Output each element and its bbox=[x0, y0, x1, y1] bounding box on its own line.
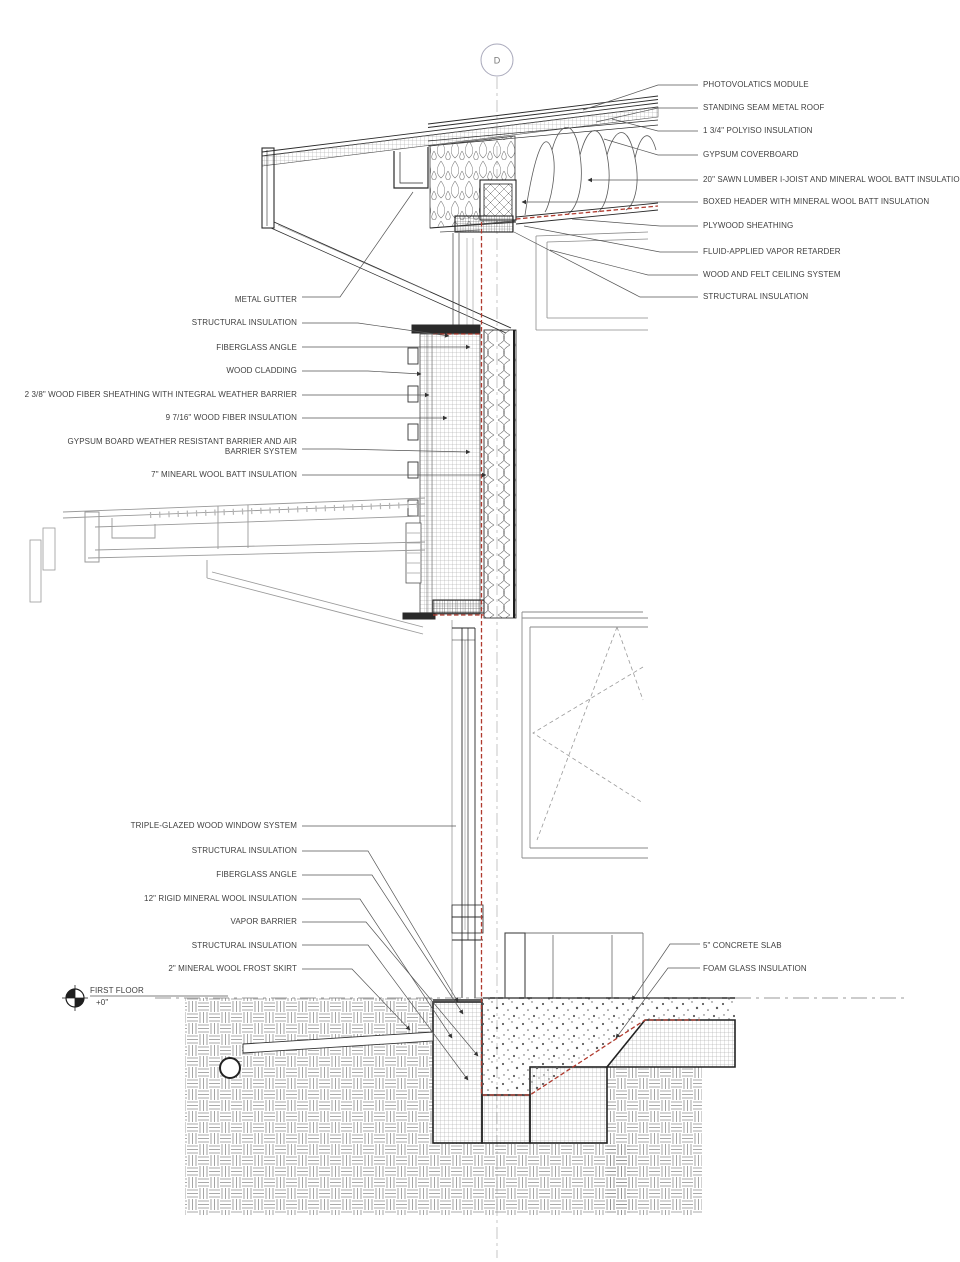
callout-photovoltaics-module: PHOTOVOLATICS MODULE bbox=[703, 80, 809, 90]
drain-pipe bbox=[220, 1058, 240, 1078]
callout-metal-gutter: METAL GUTTER bbox=[235, 295, 297, 305]
callout-plywood-sheathing: PLYWOOD SHEATHING bbox=[703, 221, 793, 231]
callout-structural-insulation-roof: STRUCTURAL INSULATION bbox=[703, 292, 808, 302]
callout-wood-cladding: WOOD CLADDING bbox=[226, 366, 297, 376]
wall-panel bbox=[403, 325, 516, 619]
level-marker-elevation: +0" bbox=[96, 998, 108, 1008]
callout-vapor-barrier: VAPOR BARRIER bbox=[231, 917, 298, 927]
level-marker-label: FIRST FLOOR bbox=[90, 986, 144, 996]
canopy bbox=[30, 498, 425, 634]
callout-fluid-applied-vapor-retarder: FLUID-APPLIED VAPOR RETARDER bbox=[703, 247, 841, 257]
callout-boxed-header: BOXED HEADER WITH MINERAL WOOL BATT INSU… bbox=[703, 197, 929, 207]
window-elevation bbox=[505, 612, 648, 998]
roof-assembly bbox=[262, 96, 658, 333]
callout-mineral-wool-frost-skirt: 2" MINERAL WOOL FROST SKIRT bbox=[168, 964, 297, 974]
grid-bubble-label: D bbox=[494, 56, 501, 66]
callout-triple-glazed-window: TRIPLE-GLAZED WOOD WINDOW SYSTEM bbox=[131, 821, 297, 831]
section-detail-sheet: D bbox=[0, 0, 960, 1262]
section-detail-drawing: D bbox=[0, 0, 960, 1262]
callout-rigid-mineral-wool: 12" RIGID MINERAL WOOL INSULATION bbox=[144, 894, 297, 904]
callout-foam-glass-insulation: FOAM GLASS INSULATION bbox=[703, 964, 807, 974]
level-marker-icon bbox=[62, 985, 88, 1011]
callout-structural-insulation-sill: STRUCTURAL INSULATION bbox=[192, 846, 297, 856]
callout-structural-insulation-base: STRUCTURAL INSULATION bbox=[192, 941, 297, 951]
callout-wood-fiber-insulation: 9 7/16" WOOD FIBER INSULATION bbox=[166, 413, 297, 423]
callout-structural-insulation-wall-top: STRUCTURAL INSULATION bbox=[192, 318, 297, 328]
callout-wood-felt-ceiling: WOOD AND FELT CEILING SYSTEM bbox=[703, 270, 841, 280]
window-swing-symbol bbox=[533, 627, 643, 840]
callout-gypsum-coverboard: GYPSUM COVERBOARD bbox=[703, 150, 799, 160]
callout-sawn-lumber-i-joist: 20" SAWN LUMBER I-JOIST AND MINERAL WOOL… bbox=[703, 175, 960, 185]
callout-standing-seam-roof: STANDING SEAM METAL ROOF bbox=[703, 103, 824, 113]
callout-wood-fiber-sheathing: 2 3/8" WOOD FIBER SHEATHING WITH INTEGRA… bbox=[25, 390, 297, 400]
foundation bbox=[185, 998, 735, 1215]
callout-polyiso-insulation: 1 3/4" POLYISO INSULATION bbox=[703, 126, 813, 136]
window-section bbox=[452, 620, 483, 998]
callout-fiberglass-angle-base: FIBERGLASS ANGLE bbox=[216, 870, 297, 880]
callout-gypsum-board-wrb: GYPSUM BOARD WEATHER RESISTANT BARRIER A… bbox=[59, 437, 297, 456]
foam-glass-block bbox=[433, 1002, 482, 1143]
callout-fiberglass-angle-top: FIBERGLASS ANGLE bbox=[216, 343, 297, 353]
soil-hatch bbox=[185, 998, 433, 1215]
callout-mineral-wool-batt: 7" MINEARL WOOL BATT INSULATION bbox=[151, 470, 297, 480]
clerestory-zone bbox=[440, 230, 648, 330]
callout-concrete-slab: 5" CONCRETE SLAB bbox=[703, 941, 782, 951]
